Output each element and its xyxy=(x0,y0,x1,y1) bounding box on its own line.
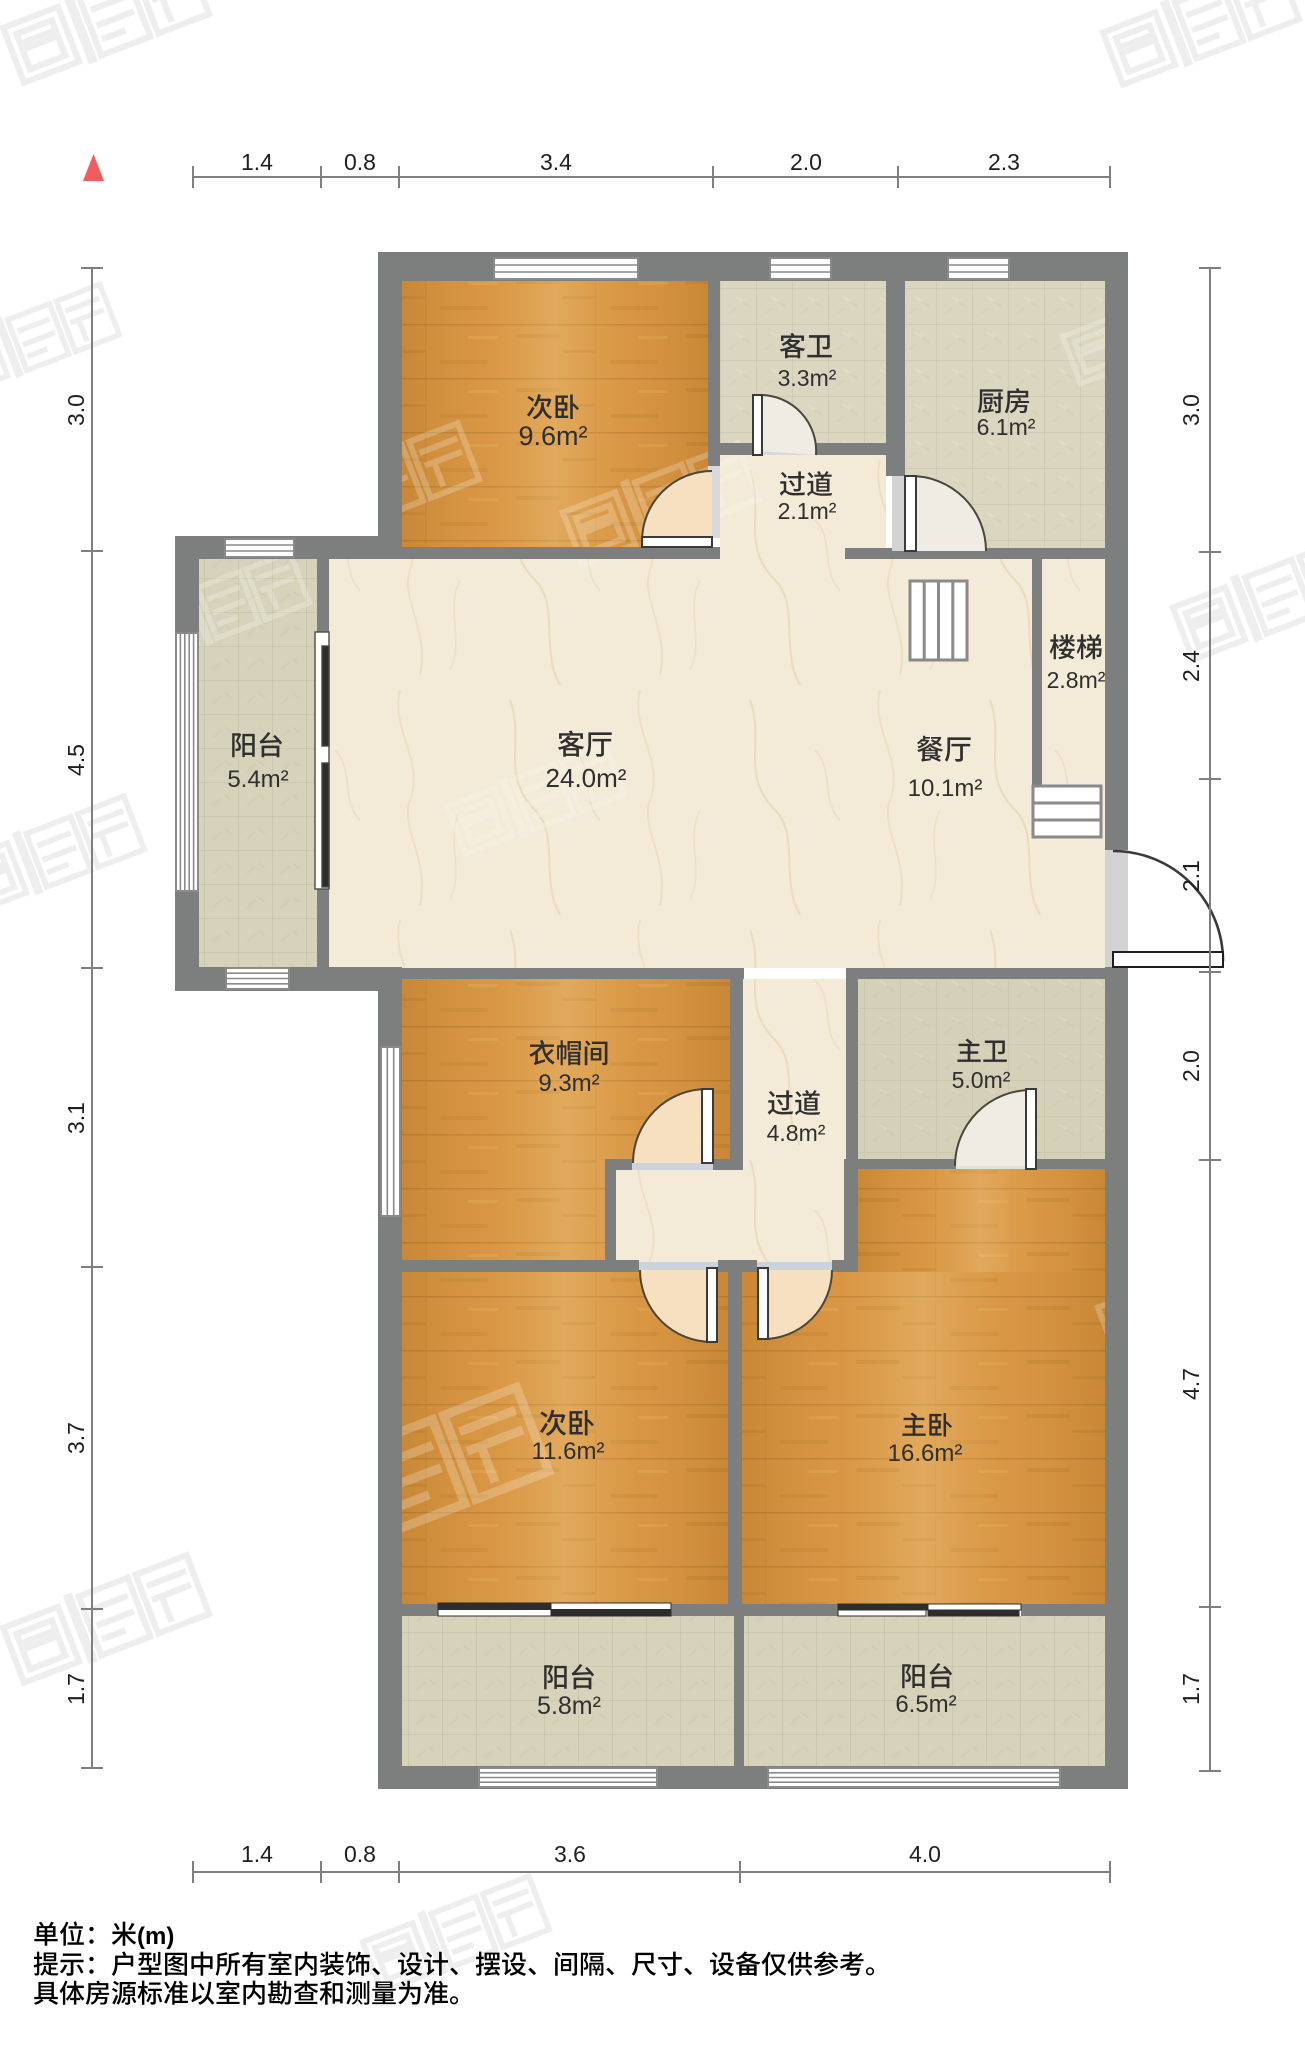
svg-text:6.1m²: 6.1m² xyxy=(977,414,1036,440)
svg-text:3.6: 3.6 xyxy=(554,1841,586,1867)
svg-text:4.7: 4.7 xyxy=(1178,1368,1204,1400)
svg-text:11.6m²: 11.6m² xyxy=(532,1438,605,1465)
svg-text:6.5m²: 6.5m² xyxy=(895,1691,956,1718)
svg-text:16.6m²: 16.6m² xyxy=(888,1440,963,1467)
svg-text:1.4: 1.4 xyxy=(241,1841,273,1867)
svg-text:3.3m²: 3.3m² xyxy=(778,365,837,391)
svg-text:3.1: 3.1 xyxy=(63,1102,89,1134)
svg-text:5.8m²: 5.8m² xyxy=(537,1692,601,1720)
svg-text:2.3: 2.3 xyxy=(988,149,1020,175)
svg-text:3.7: 3.7 xyxy=(63,1422,89,1454)
svg-text:2.8m²: 2.8m² xyxy=(1047,667,1106,693)
svg-text:1.4: 1.4 xyxy=(241,149,273,175)
svg-text:9.3m²: 9.3m² xyxy=(538,1070,599,1097)
svg-text:5.4m²: 5.4m² xyxy=(227,766,288,793)
svg-text:0.8: 0.8 xyxy=(344,149,376,175)
svg-text:2.0: 2.0 xyxy=(1178,1050,1204,1082)
svg-text:(m): (m) xyxy=(137,1923,174,1950)
svg-text:24.0m²: 24.0m² xyxy=(546,763,627,793)
svg-text:4.5: 4.5 xyxy=(63,744,89,776)
svg-text:2.1: 2.1 xyxy=(1178,860,1204,892)
svg-text:5.0m²: 5.0m² xyxy=(952,1067,1011,1093)
svg-text:4.8m²: 4.8m² xyxy=(767,1120,826,1146)
svg-text:4.0: 4.0 xyxy=(909,1841,941,1867)
svg-text:2.0: 2.0 xyxy=(790,149,822,175)
svg-text:3.0: 3.0 xyxy=(63,394,89,426)
svg-text:9.6m²: 9.6m² xyxy=(518,421,587,451)
svg-text:0.8: 0.8 xyxy=(344,1841,376,1867)
svg-text:2.4: 2.4 xyxy=(1178,650,1204,682)
svg-text:3.4: 3.4 xyxy=(540,149,572,175)
svg-text:1.7: 1.7 xyxy=(1178,1673,1204,1705)
svg-text:1.7: 1.7 xyxy=(63,1673,89,1705)
svg-text:3.0: 3.0 xyxy=(1178,394,1204,426)
svg-text:2.1m²: 2.1m² xyxy=(778,498,837,524)
svg-text:10.1m²: 10.1m² xyxy=(908,775,983,802)
